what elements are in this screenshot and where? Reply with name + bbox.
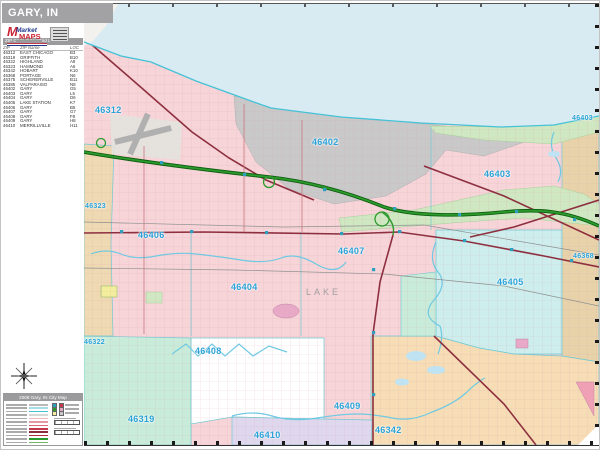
legend-samples — [6, 403, 50, 444]
map-graphics — [84, 4, 599, 445]
zip-label: 46407 — [338, 246, 365, 256]
zip-index-table: ZIP Code ZIP Name LOC 46312EAST CHICAGOB… — [3, 45, 83, 128]
legend-title: 2008 Gary, IN City Map — [4, 394, 82, 401]
table-row: 46410MERRILLVILLEH11 — [3, 124, 83, 129]
cemetery-area — [273, 304, 299, 318]
zip-label: 46342 — [375, 425, 402, 435]
scale-bar-km — [54, 430, 80, 435]
cemetery-area — [516, 339, 528, 348]
side-panel: M Market MAPS ZIP Code Index/Grid Locato… — [0, 0, 84, 450]
scale-caption-bar — [54, 428, 76, 430]
logo-info-box — [50, 27, 69, 42]
legend-symbols — [52, 403, 82, 435]
zip-label: 46312 — [95, 105, 122, 115]
legend-row — [6, 441, 50, 444]
scale-bar-miles — [54, 420, 80, 425]
zip-label: 46403 — [484, 169, 511, 179]
zip-label: 46410 — [254, 430, 281, 440]
grid-ruler-bottom — [84, 441, 599, 445]
map-canvas: 4631246402464034640346406464044640746405… — [83, 3, 600, 446]
grid-ruler-top — [84, 4, 599, 7]
zip-label: 46368 — [573, 253, 594, 260]
zip-label: 46406 — [138, 230, 165, 240]
zip-label: 46403 — [572, 115, 593, 122]
zip-label: 46322 — [84, 339, 105, 346]
marketmaps-logo: M Market MAPS — [7, 26, 81, 46]
zip-label: 46402 — [312, 137, 339, 147]
compass-rose-icon — [8, 360, 40, 392]
zip-label: 46408 — [195, 346, 222, 356]
zip-label: 46404 — [231, 282, 258, 292]
zip-label: 46319 — [128, 414, 155, 424]
zip-label: 46323 — [85, 203, 106, 210]
scale-caption-bar — [54, 418, 76, 420]
legend-body — [4, 401, 82, 447]
map-legend: 2008 Gary, IN City Map — [3, 393, 83, 446]
page-title: GARY, IN — [2, 3, 113, 23]
zip-label: 46405 — [497, 277, 524, 287]
grid-ruler-right — [595, 4, 599, 445]
zip-label: 46409 — [334, 401, 361, 411]
county-label: LAKE — [306, 287, 341, 297]
logo-stripe-banner — [7, 43, 47, 46]
zip-table-rows: 46312EAST CHICAGOB346319GRIFFITHB1046322… — [3, 51, 83, 128]
logo-tagline-bar — [16, 40, 42, 42]
